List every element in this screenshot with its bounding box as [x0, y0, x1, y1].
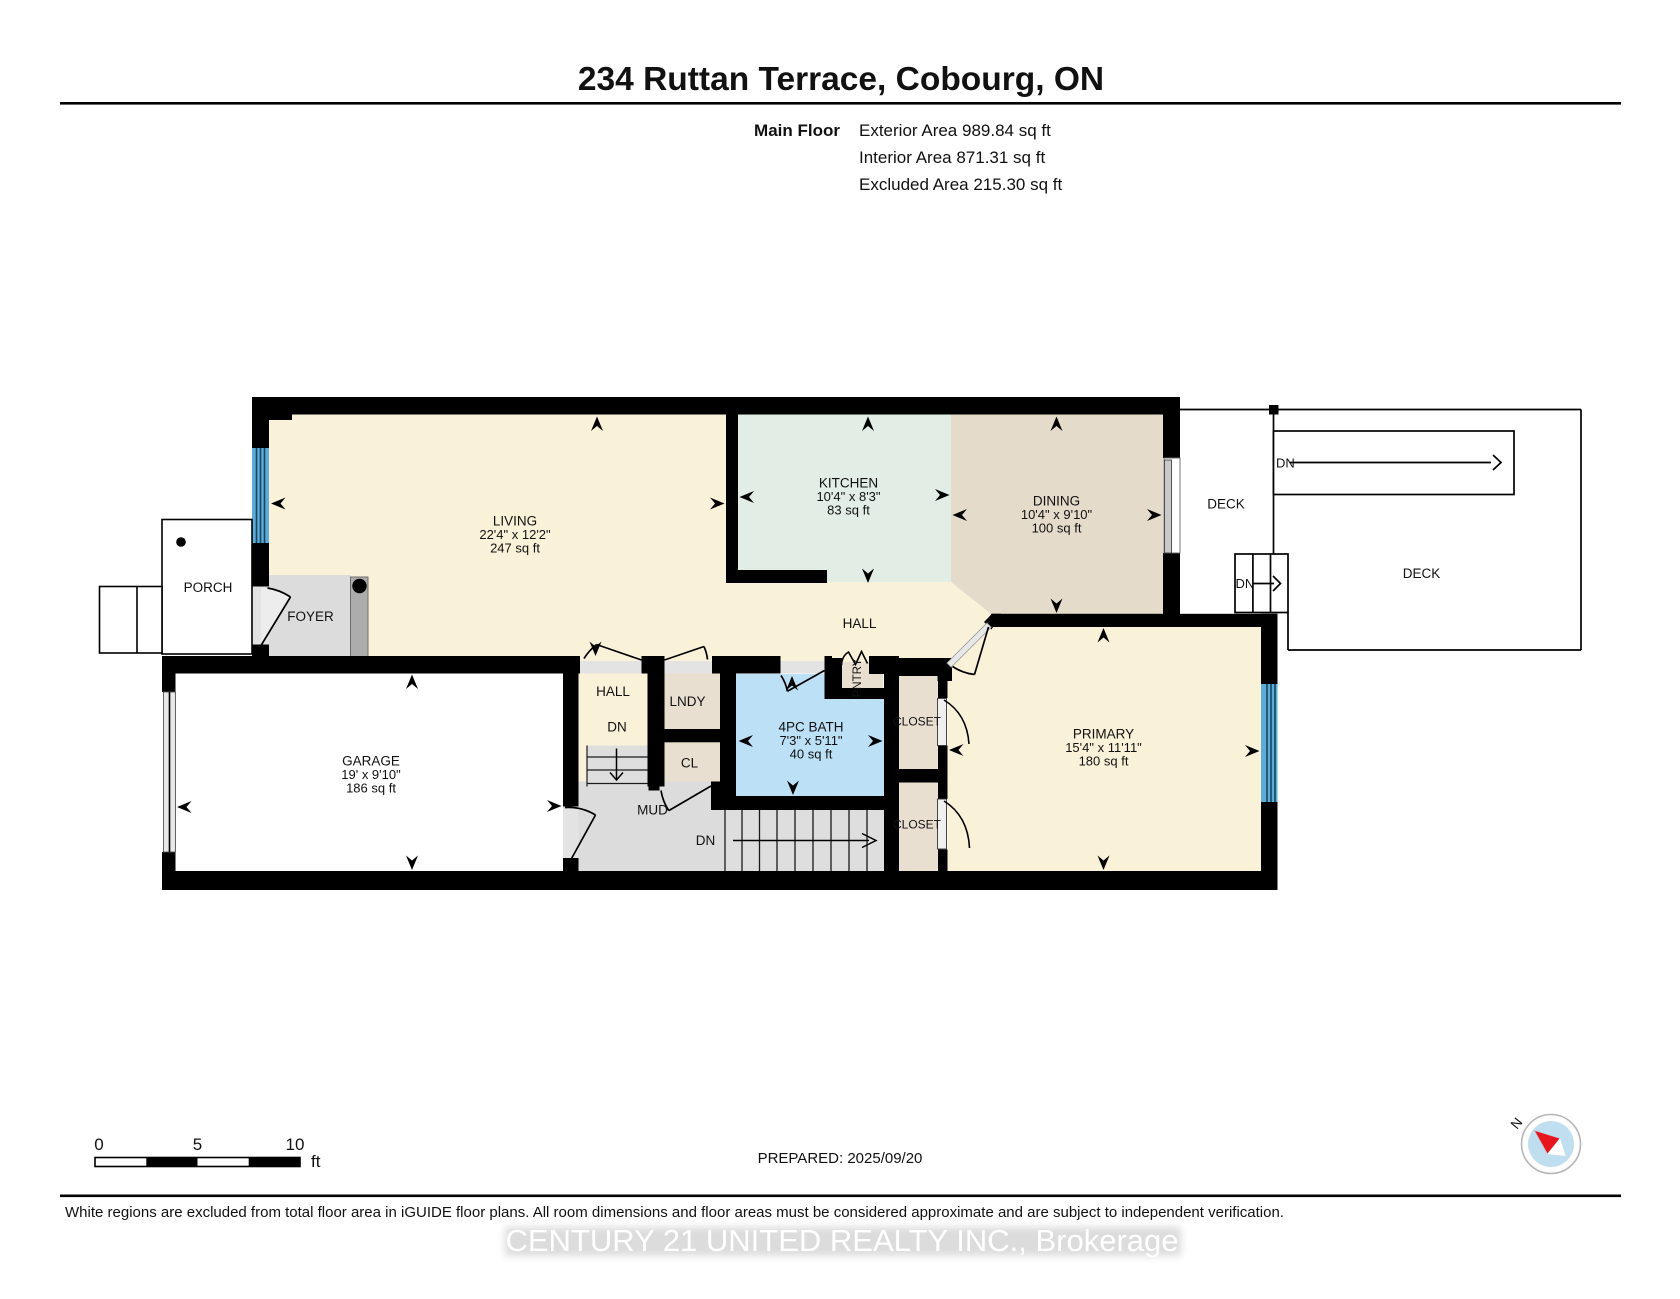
svg-text:CLOSET: CLOSET: [893, 818, 942, 832]
svg-text:Main Floor: Main Floor: [754, 121, 840, 140]
svg-text:100 sq ft: 100 sq ft: [1032, 521, 1082, 536]
svg-text:LNDY: LNDY: [669, 694, 705, 709]
svg-text:DN: DN: [607, 720, 627, 735]
svg-text:83 sq ft: 83 sq ft: [827, 503, 870, 518]
svg-text:DECK: DECK: [1403, 566, 1441, 581]
svg-text:0: 0: [94, 1135, 103, 1154]
svg-text:DECK: DECK: [1207, 497, 1245, 512]
svg-text:247 sq ft: 247 sq ft: [490, 541, 540, 556]
svg-text:PNTRY: PNTRY: [852, 658, 864, 697]
svg-text:DN: DN: [1276, 456, 1295, 471]
svg-text:MUD: MUD: [637, 803, 668, 818]
svg-text:HALL: HALL: [596, 684, 630, 699]
svg-text:234 Ruttan Terrace, Cobourg, O: 234 Ruttan Terrace, Cobourg, ON: [578, 61, 1104, 98]
svg-text:PREPARED: 2025/09/20: PREPARED: 2025/09/20: [758, 1150, 923, 1167]
svg-text:Interior Area 871.31 sq ft: Interior Area 871.31 sq ft: [859, 148, 1045, 167]
svg-text:FOYER: FOYER: [287, 609, 334, 624]
svg-text:CL: CL: [681, 756, 699, 771]
svg-text:180 sq ft: 180 sq ft: [1079, 754, 1129, 769]
svg-text:DN: DN: [1236, 576, 1255, 591]
svg-text:Exterior Area 989.84 sq ft: Exterior Area 989.84 sq ft: [859, 121, 1051, 140]
svg-text:DN: DN: [696, 833, 716, 848]
svg-text:White regions are excluded fro: White regions are excluded from total fl…: [65, 1204, 1284, 1221]
svg-text:CLOSET: CLOSET: [893, 715, 942, 729]
svg-text:186 sq ft: 186 sq ft: [346, 781, 396, 796]
svg-text:5: 5: [193, 1135, 202, 1154]
svg-text:PORCH: PORCH: [184, 580, 233, 595]
svg-text:ft: ft: [311, 1152, 321, 1171]
svg-text:HALL: HALL: [843, 616, 877, 631]
svg-text:40 sq ft: 40 sq ft: [790, 747, 833, 762]
svg-text:10: 10: [286, 1135, 305, 1154]
svg-text:Excluded Area 215.30 sq ft: Excluded Area 215.30 sq ft: [859, 175, 1062, 194]
svg-text:CENTURY 21 UNITED REALTY INC.,: CENTURY 21 UNITED REALTY INC., Brokerage: [505, 1223, 1178, 1258]
